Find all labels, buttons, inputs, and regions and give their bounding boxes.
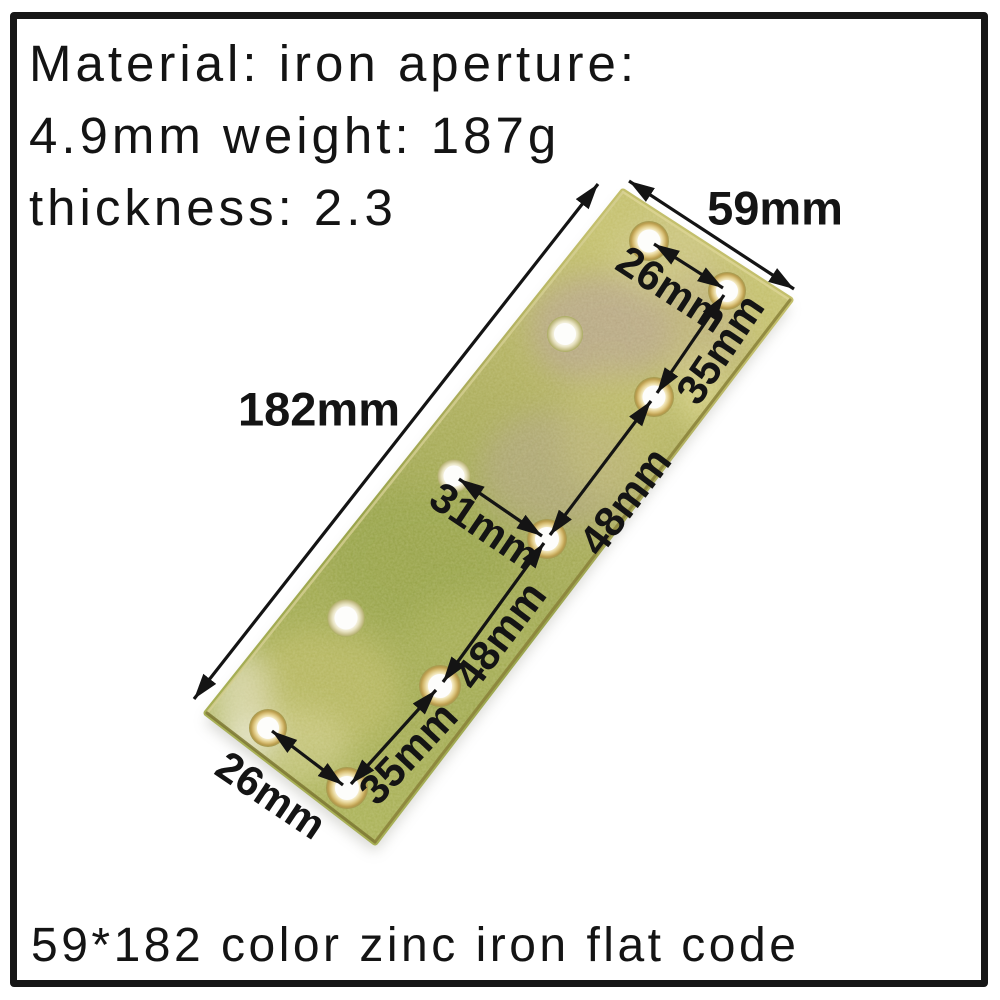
screw-hole <box>249 709 287 747</box>
dim-label-plate-width: 59mm <box>707 182 843 235</box>
screw-hole <box>547 316 583 352</box>
screw-hole <box>327 599 365 637</box>
product-info: Material: iron aperture: 4.9mm weight: 1… <box>29 28 638 244</box>
info-line-thickness: thickness: 2.3 <box>29 172 638 244</box>
info-line-material: Material: iron aperture: <box>29 28 638 100</box>
dim-label-plate-length: 182mm <box>238 383 400 436</box>
info-line-weight: 4.9mm weight: 187g <box>29 100 638 172</box>
caption-text: 59*182 color zinc iron flat code <box>31 918 799 973</box>
